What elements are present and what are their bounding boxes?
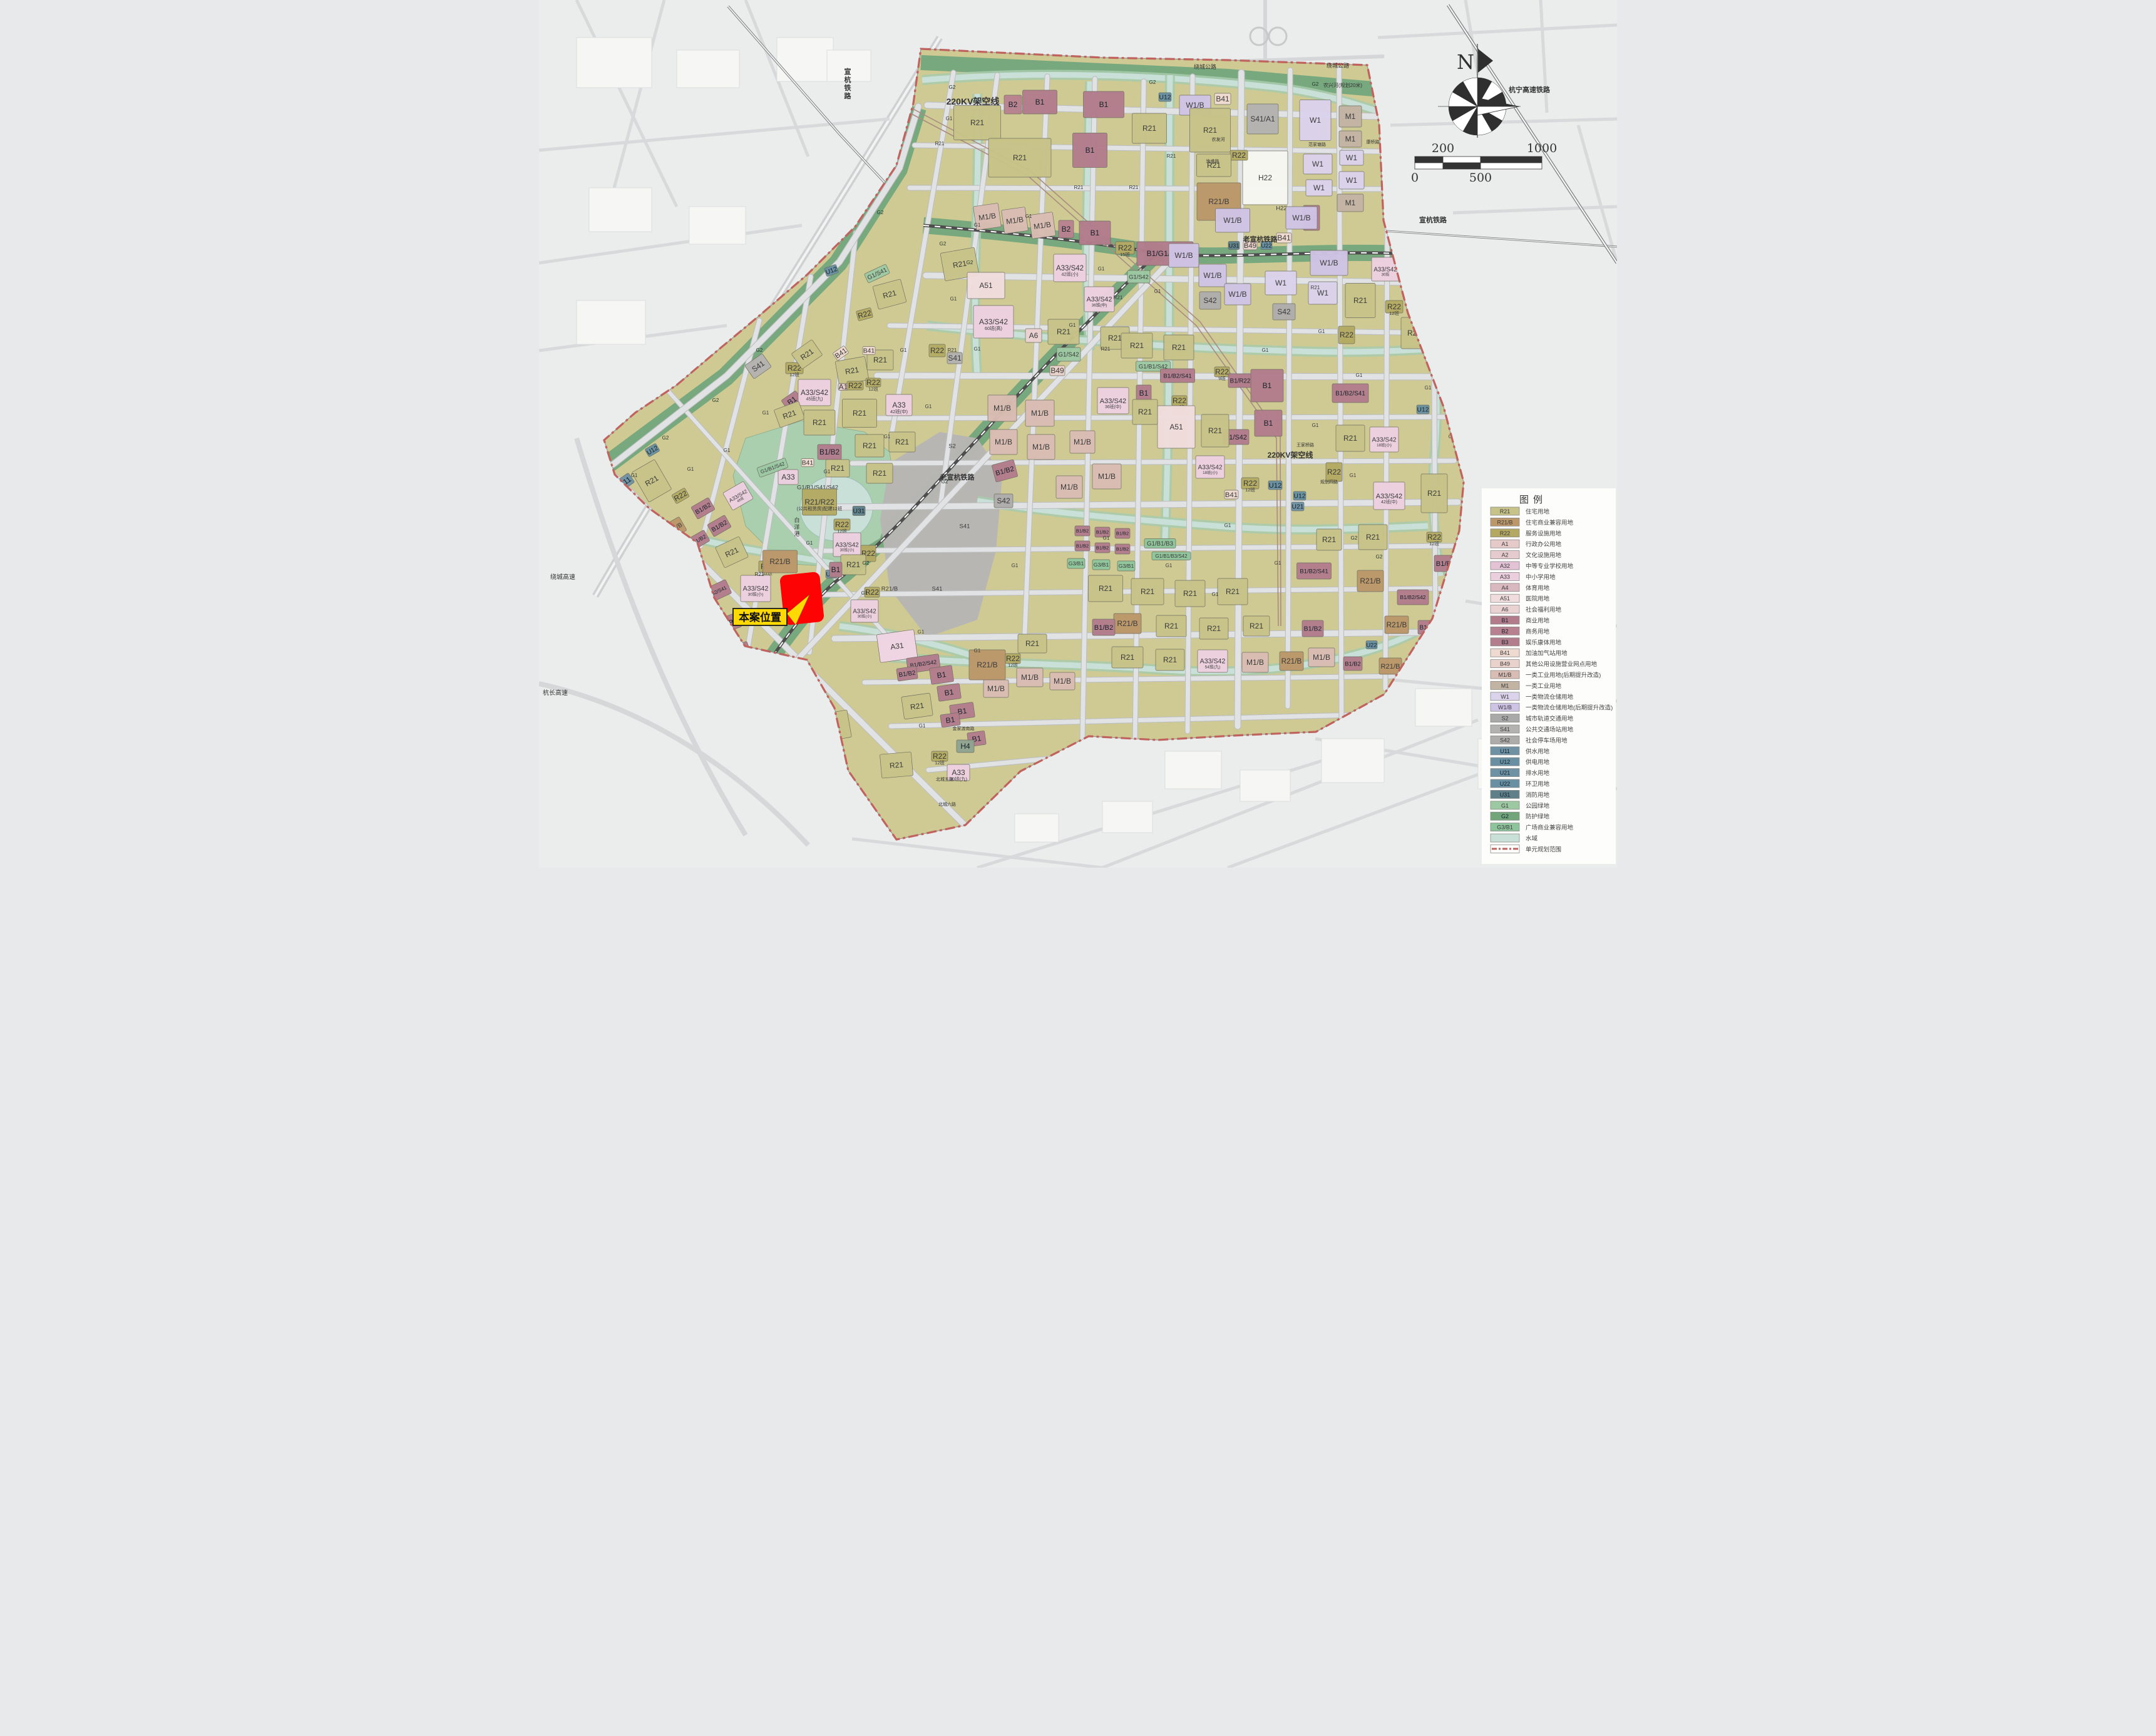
parcel-sublabel: 36班(中) — [1092, 302, 1107, 307]
zone-label: G1 — [884, 434, 891, 439]
legend-label: 社会停车场用地 — [1526, 737, 1568, 744]
zone-label: G1 — [1103, 535, 1110, 541]
legend-code: B2 — [1501, 628, 1508, 634]
parcel-label: A33/S42 — [1087, 296, 1112, 304]
legend-code: W1/B — [1498, 704, 1512, 711]
parcel-label: R21 — [1322, 535, 1336, 544]
annotation: 康桥路 — [1367, 139, 1380, 145]
annotation: 杭长高速 — [543, 689, 568, 697]
legend-code: U21 — [1500, 770, 1511, 776]
parcel-label: A31 — [890, 641, 904, 652]
road — [1238, 73, 1241, 726]
parcel-label: R21 — [889, 760, 903, 770]
legend-label: 排水用地 — [1526, 769, 1550, 777]
parcel-label: R21 — [970, 118, 984, 127]
parcel-label: U12 — [1159, 95, 1171, 101]
parcel-label: B1 — [1086, 146, 1095, 155]
parcel-label: R21 — [1226, 587, 1240, 596]
parcel-label: W1/B — [1292, 213, 1310, 222]
parcel-label: B1/R22 — [1230, 378, 1251, 384]
parcel-sublabel: 30班(小) — [748, 591, 764, 597]
parcel-label: A33/S42 — [801, 389, 828, 397]
parcel-label: M1/B — [1074, 438, 1091, 446]
annotation: 范家塘路 — [1308, 141, 1326, 147]
parcel-label: B1/B2 — [1116, 547, 1129, 552]
zone-label: G1 — [1356, 372, 1363, 378]
legend-code: A6 — [1501, 607, 1508, 613]
annotation: 白洋港 — [794, 516, 799, 537]
legend-label: 中等专业学校用地 — [1526, 563, 1574, 570]
legend-code: S41 — [1500, 726, 1510, 732]
parcel-label: M1/B — [1060, 483, 1078, 491]
parcel-label: B1/B2/S41 — [1300, 568, 1328, 575]
north-label: N — [1457, 50, 1474, 74]
legend-code: B41 — [1500, 650, 1510, 656]
parcel-label: R21 — [1108, 334, 1122, 342]
parcel-label: G1/B1/B3 — [1147, 540, 1173, 547]
road — [1288, 70, 1290, 706]
zone-label: R21 — [1101, 346, 1111, 352]
outside-block — [1240, 770, 1290, 801]
parcel-label: G3/B1 — [1119, 563, 1134, 569]
annotation: 规划四路 — [1320, 479, 1338, 485]
parcel-label: G1/B1/B3/S42 — [1155, 553, 1188, 559]
parcel-label: M1/B — [993, 404, 1011, 413]
parcel-label: W1 — [1346, 176, 1357, 185]
legend-label: 行政办公用地 — [1526, 541, 1562, 548]
legend-label: 防护绿地 — [1526, 813, 1550, 821]
parcel-sublabel: 54班(九) — [1205, 664, 1221, 669]
zone-label: G1 — [1275, 560, 1281, 566]
parcel-sublabel: 9班 — [1218, 375, 1226, 381]
zone-label: G1 — [925, 404, 932, 409]
zone-label: R21 — [755, 572, 764, 577]
parcel-label: R21 — [831, 464, 844, 473]
parcel-label: M1/B — [1313, 653, 1330, 662]
parcel-label: B41 — [1277, 234, 1291, 242]
annotation: 农兴河(规划20米) — [1323, 82, 1363, 88]
parcel-label: A33/S42 — [743, 585, 769, 593]
legend-item: M1一类工业用地 — [1491, 681, 1562, 690]
parcel-label: B1 — [1091, 229, 1100, 237]
parcel-label: M1 — [1345, 112, 1356, 121]
zone-label: G1 — [919, 723, 926, 729]
parcel-label: B1/B2/S41 — [1163, 372, 1191, 379]
parcel-label: A33/S42 — [1373, 266, 1397, 273]
legend-label: 一类物流仓储用地 — [1526, 693, 1574, 701]
legend-label: 一类工业用地 — [1526, 682, 1562, 690]
legend-label: 一类物流仓储用地(后期提升改造) — [1526, 704, 1613, 712]
parcel-label: M1/B — [1021, 673, 1039, 682]
legend-swatch — [1491, 834, 1519, 842]
parcel-label: S41/A1 — [1250, 115, 1275, 123]
legend-label: 文化设施用地 — [1526, 552, 1562, 559]
legend-label: 环卫用地 — [1526, 781, 1550, 788]
parcel-label: R21/B — [881, 585, 898, 592]
parcel-label: R21 — [1250, 622, 1263, 630]
parcel-sublabel: 45班(九) — [806, 396, 823, 401]
legend-label: 医院用地 — [1526, 595, 1550, 603]
legend-code: B3 — [1501, 639, 1508, 645]
legend-item: S42社会停车场用地 — [1491, 736, 1568, 744]
parcel-label: R21 — [1343, 434, 1357, 443]
parcel-label: B1/B2/S42 — [1400, 594, 1425, 600]
parcel-label: R21/B — [1281, 657, 1302, 665]
legend-code: M1/B — [1498, 672, 1511, 678]
parcel-sublabel: 18班(小) — [1203, 470, 1218, 475]
parcel-label: M1/B — [1032, 443, 1050, 451]
parcel-label: W1/B — [1174, 251, 1193, 260]
legend-code: G3/B1 — [1497, 824, 1513, 831]
zone-label: R21 — [1074, 185, 1084, 190]
parcel-label: S42 — [997, 496, 1010, 505]
parcel-label: U22 — [1366, 642, 1377, 648]
parcel-label: A33/S42 — [1376, 493, 1402, 500]
zone-label: G1 — [861, 590, 868, 596]
parcel-label: R21 — [895, 438, 909, 446]
parcel-label: W1/B — [1223, 216, 1241, 225]
legend-item: M1/B一类工业用地(后期提升改造) — [1491, 670, 1601, 679]
parcel-label: B1/B2 — [1094, 624, 1113, 632]
legend-title: 图例 — [1519, 495, 1547, 505]
annotation: 220KV架空线 — [947, 96, 1000, 106]
parcel-label: R21 — [1172, 343, 1186, 352]
parcel-label: R21 — [1099, 584, 1112, 593]
zone-label: G2 — [756, 347, 763, 353]
annotation: 北城六路 — [938, 801, 956, 807]
zone-label: G2 — [1376, 554, 1383, 560]
legend-label: 消防用地 — [1526, 791, 1550, 799]
legend-item: S41公共交通场站用地 — [1491, 725, 1574, 734]
annotation: 逸盛路 — [1206, 158, 1219, 164]
parcel-label: R21 — [863, 441, 876, 450]
legend-label: 供电用地 — [1526, 759, 1550, 766]
parcel-label: R21/B — [977, 660, 997, 669]
legend-label: 商业用地 — [1526, 617, 1550, 625]
parcel-sublabel: 18班(小) — [1377, 442, 1392, 448]
scale-500: 500 — [1469, 171, 1492, 185]
outside-block — [677, 50, 739, 88]
parcel-label: S41 — [932, 585, 943, 592]
legend-code: B49 — [1500, 661, 1510, 667]
legend-panel: 图例 R21住宅用地R21/B住宅商业兼容用地R22服务设施用地A1行政办公用地… — [1482, 488, 1616, 864]
legend-code: U31 — [1500, 791, 1511, 798]
parcel-label: B1 — [1139, 389, 1149, 398]
legend-label: 广场商业兼容用地 — [1526, 824, 1574, 831]
zone-label: G1 — [1098, 266, 1105, 272]
legend-code: A4 — [1501, 585, 1508, 591]
parcel-label: A33/S42 — [1200, 658, 1226, 665]
parcel-label: G3/B1 — [1069, 560, 1084, 567]
parcel-label: R21 — [1025, 639, 1039, 648]
parcel-label: G3/B1 — [1094, 562, 1109, 568]
legend-code: R22 — [1500, 530, 1511, 537]
annotation: 220KV架空线 — [1268, 450, 1313, 460]
outside-block — [589, 188, 652, 232]
parcel-sublabel: 42班(中) — [890, 408, 908, 414]
parcel-label: G1/S42 — [1129, 274, 1149, 280]
zone-label: G1 — [946, 116, 953, 121]
parcel-label: R21 — [1353, 296, 1367, 305]
parcel-label: B41 — [1216, 95, 1229, 103]
parcel-label: B1 — [945, 715, 956, 725]
parcel-label: A33/S42 — [835, 542, 858, 548]
annotation: 老宣杭铁路 — [940, 473, 975, 481]
zone-label: G2 — [1312, 81, 1319, 87]
legend-label: 城市轨道交通用地 — [1526, 715, 1574, 722]
legend-code: R21/B — [1497, 519, 1512, 525]
parcel-label: S42 — [1203, 296, 1217, 305]
parcel-label: W1 — [1310, 116, 1321, 125]
parcel-label: R21/B — [1360, 577, 1380, 585]
zone-label: G1 — [1025, 213, 1032, 219]
legend-item: R21/B住宅商业兼容用地 — [1491, 518, 1574, 526]
legend-label: 一类工业用地(后期提升改造) — [1526, 672, 1601, 679]
parcel-label: R21 — [1141, 587, 1154, 596]
legend-item: A2文化设施用地 — [1491, 551, 1562, 560]
parcel-label: B1 — [1263, 381, 1272, 390]
parcel-label: R21/B — [769, 557, 790, 566]
scale-1000: 1000 — [1527, 141, 1557, 155]
outside-block — [689, 207, 746, 244]
parcel-label: R21 — [813, 418, 826, 427]
parcel-label: U12 — [1417, 407, 1429, 414]
zone-label: G1 — [974, 346, 981, 352]
parcel-label: M1/B — [987, 684, 1005, 693]
planning-map-page: R21B2B1B1R21W1/BB41U12R21B1R21S41/A1W1M1… — [539, 0, 1617, 868]
parcel-label: B2 — [1062, 225, 1071, 234]
parcel-label: W1/B — [1320, 259, 1338, 267]
parcel-label: B2 — [1009, 100, 1018, 109]
parcel-label: U31 — [853, 508, 865, 515]
parcel-label: A33/S42 — [1100, 398, 1126, 405]
parcel-label: W1 — [1275, 279, 1286, 287]
parcel-label: R21/B — [1380, 663, 1400, 670]
parcel-label: U21 — [1292, 504, 1304, 511]
legend-code: G1 — [1501, 803, 1509, 809]
parcel-label: W1/B — [1228, 290, 1246, 299]
zone-label: G1 — [824, 469, 831, 475]
parcel-label: R21 — [1366, 533, 1380, 542]
parcel-label: B1 — [944, 687, 955, 697]
zone-label: G1 — [1262, 347, 1269, 353]
zone-label: R21 — [948, 347, 957, 353]
outside-block — [577, 38, 652, 88]
annotation: 杭宁高速铁路 — [1509, 85, 1551, 94]
zone-label: G1 — [806, 540, 813, 546]
parcel-label: A33 — [781, 473, 795, 481]
parcel-label: R21 — [1121, 653, 1134, 662]
zone-label: G1 — [1312, 423, 1319, 428]
legend-label: 其他公用设施营业网点用地 — [1526, 660, 1598, 668]
legend-item: W1/B一类物流仓储用地(后期提升改造) — [1491, 703, 1613, 712]
legend-code: U11 — [1500, 748, 1510, 754]
legend-item: A6社会福利用地 — [1491, 605, 1562, 614]
legend-label: 商务用地 — [1526, 628, 1550, 635]
parcel-label: R21 — [1207, 624, 1221, 633]
parcel-label: R21 — [846, 560, 860, 569]
parcel-label: A6 — [1029, 331, 1039, 340]
zone-label: G1 — [1318, 329, 1325, 334]
parcel-label: R21 — [1142, 124, 1156, 133]
legend-label: 社会福利用地 — [1526, 606, 1562, 614]
zone-label: R21 — [1311, 285, 1320, 290]
zone-label: R21 — [1114, 295, 1123, 300]
annotation: 绕城公路 — [1194, 63, 1216, 70]
legend-label: 公园绿地 — [1526, 802, 1550, 809]
legend-item: B49其他公用设施营业网点用地 — [1491, 660, 1598, 669]
legend-code: A33 — [1500, 573, 1510, 580]
parcel-label: M1/B — [1031, 409, 1049, 418]
parcel-label: A33/S42 — [1056, 265, 1084, 272]
parcel-label: R21 — [853, 409, 866, 418]
legend-code: A2 — [1501, 552, 1508, 558]
parcel-label: R22 — [1340, 331, 1353, 339]
parcel-label: W1 — [1346, 153, 1357, 162]
zone-label: G1 — [974, 648, 981, 654]
site-callout-label: 本案位置 — [739, 611, 781, 624]
zone-label: G1 — [1166, 563, 1173, 568]
legend-code: S42 — [1500, 737, 1510, 743]
zone-label: G1 — [1350, 473, 1357, 478]
outside-block — [1165, 751, 1221, 789]
scale-0: 0 — [1411, 171, 1419, 185]
parcel-label: H22 — [1276, 205, 1286, 212]
zone-label: G2 — [877, 210, 884, 215]
legend-code: S2 — [1501, 716, 1508, 722]
parcel-label: R21 — [1183, 589, 1197, 598]
annotation: 王家桥路 — [1296, 442, 1314, 448]
legend-item: A1行政办公用地 — [1491, 540, 1562, 548]
zone-label: G1 — [762, 410, 769, 416]
parcel-label: R22 — [1327, 468, 1341, 476]
zone-label: G1 — [1425, 385, 1432, 391]
legend-code: W1 — [1501, 694, 1509, 700]
legend-item: W1一类物流仓储用地 — [1491, 692, 1574, 701]
zone-label: G2 — [1149, 80, 1156, 85]
legend-item: R22服务设施用地 — [1491, 529, 1562, 538]
zone-label: G2 — [967, 260, 973, 265]
parcel-label: M1 — [1345, 198, 1356, 207]
parcel-label: R22 — [930, 346, 944, 355]
zone-label: G1 — [918, 629, 925, 635]
legend-item: G3/B1广场商业兼容用地 — [1491, 823, 1574, 832]
legend-label: 体育用地 — [1526, 584, 1550, 592]
annotation: 农发河 — [1212, 136, 1225, 142]
zone-label: G1 — [900, 347, 907, 353]
zone-label: G1 — [631, 473, 638, 478]
parcel-label: B1/B2 — [1304, 625, 1322, 633]
parcel-sublabel: 12班 — [868, 386, 878, 392]
outside-block — [1415, 689, 1472, 726]
parcel-label: R21 — [1163, 655, 1177, 664]
parcel-sublabel: 12班 — [935, 759, 945, 766]
outside-block — [577, 300, 645, 344]
legend-code: R21 — [1500, 508, 1511, 515]
legend-label: 中小学用地 — [1526, 573, 1556, 581]
parcel-sublabel: 30班(小) — [858, 614, 872, 619]
legend-code: A1 — [1501, 541, 1508, 547]
parcel-label: R21 — [1138, 408, 1152, 416]
outside-block — [777, 38, 833, 81]
parcel-label: M1/B — [1098, 472, 1116, 481]
zone-label: R21 — [1167, 153, 1176, 159]
parcel-sublabel: 12班 — [1429, 540, 1439, 547]
parcel-sublabel: 12班 — [1245, 486, 1255, 493]
legend-label: 住宅商业兼容用地 — [1526, 519, 1574, 526]
parcel-label: S41 — [960, 523, 970, 530]
scale-200: 200 — [1432, 141, 1454, 155]
zone-label: G1 — [1012, 563, 1019, 568]
zone-label: G1 — [687, 466, 694, 472]
parcel-label: W1 — [1312, 160, 1323, 168]
zone-label: G2 — [863, 560, 870, 566]
zone-label: G2 — [949, 85, 956, 90]
parcel-label: R22 — [1232, 151, 1246, 160]
legend-label: 水域 — [1526, 835, 1538, 843]
parcel-label: B1 — [831, 565, 841, 574]
zone-label: G1 — [1224, 523, 1231, 528]
zone-label: G2 — [712, 398, 719, 403]
parcel-label: B1 — [937, 670, 947, 680]
parcel-label: R21 — [1208, 426, 1222, 435]
legend-code: M1 — [1501, 682, 1509, 689]
parcel-sublabel: 30班 — [1382, 272, 1390, 277]
parcel-label: S41 — [948, 354, 962, 362]
parcel-label: M1/B — [995, 438, 1012, 446]
zone-label: G1 — [1154, 289, 1161, 294]
legend-item: B41加油加气站用地 — [1491, 649, 1568, 657]
parcel-label: R21 — [1203, 126, 1217, 135]
parcel-sublabel: 12班 — [1008, 662, 1018, 668]
parcel-label: B1/B2/S41 — [1335, 390, 1365, 397]
zone-label: G2 — [1351, 535, 1358, 541]
parcel-label: B49 — [1050, 366, 1064, 375]
legend-item: B3娱乐康体用地 — [1491, 638, 1562, 647]
parcel-label: M1/B — [1054, 677, 1071, 686]
parcel-label: B1/B2 — [1096, 545, 1109, 551]
parcel-label: R21 — [1057, 327, 1070, 336]
parcel-label: R21 — [1164, 622, 1178, 630]
parcel-label: B41 — [1225, 491, 1238, 499]
parcel-sublabel: 42班(中) — [1381, 499, 1397, 505]
parcel-label: A33/S42 — [853, 608, 876, 615]
parcel-sublabel: 12班 — [1389, 310, 1399, 316]
zone-label: G1 — [1069, 322, 1076, 328]
parcel-label: U12 — [1269, 482, 1282, 490]
zone-label: G1 — [1212, 592, 1219, 597]
zone-label: G1 — [974, 222, 981, 228]
parcel-label: H4 — [960, 742, 970, 751]
zone-label: R21 — [1129, 185, 1139, 190]
legend-label: 服务设施用地 — [1526, 530, 1562, 537]
annotation: 金家渡南路 — [953, 726, 975, 731]
parcel-label: W1 — [1313, 183, 1325, 192]
parcel-label: A51 — [1169, 423, 1183, 431]
parcel-label: G1/S42 — [1058, 351, 1079, 358]
parcel-label: B1/B2 — [1076, 543, 1089, 549]
parcel-label: R21/B — [1117, 619, 1137, 628]
zone-label: G1 — [950, 296, 957, 302]
parcel-label: B1/B2 — [819, 448, 839, 456]
road — [852, 461, 1454, 463]
parcel-label: B1/B2 — [1345, 660, 1360, 667]
annotation: 绕城公路 — [1327, 62, 1349, 69]
parcel-label: B1/B2 — [1096, 530, 1109, 535]
annotation: 宣杭铁路 — [844, 67, 852, 100]
parcel-label: M1/B — [1246, 658, 1264, 667]
legend-item: 水域 — [1491, 834, 1538, 843]
